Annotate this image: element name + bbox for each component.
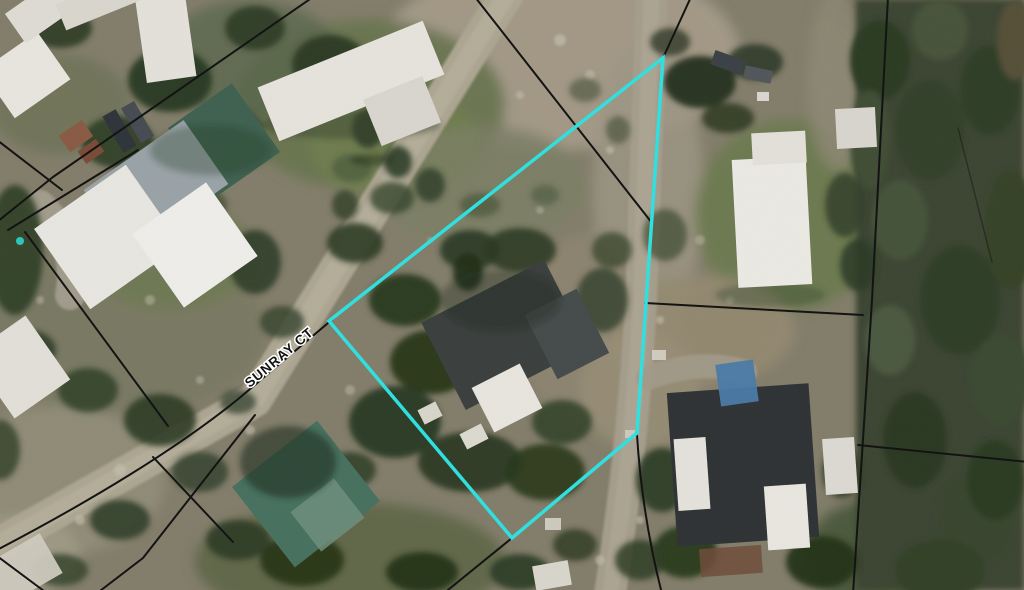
aerial-map-view[interactable]: SUNRAY CT <box>0 0 1024 590</box>
aerial-map-canvas[interactable]: SUNRAY CT <box>0 0 1024 590</box>
photo-grain-texture <box>0 0 1024 590</box>
